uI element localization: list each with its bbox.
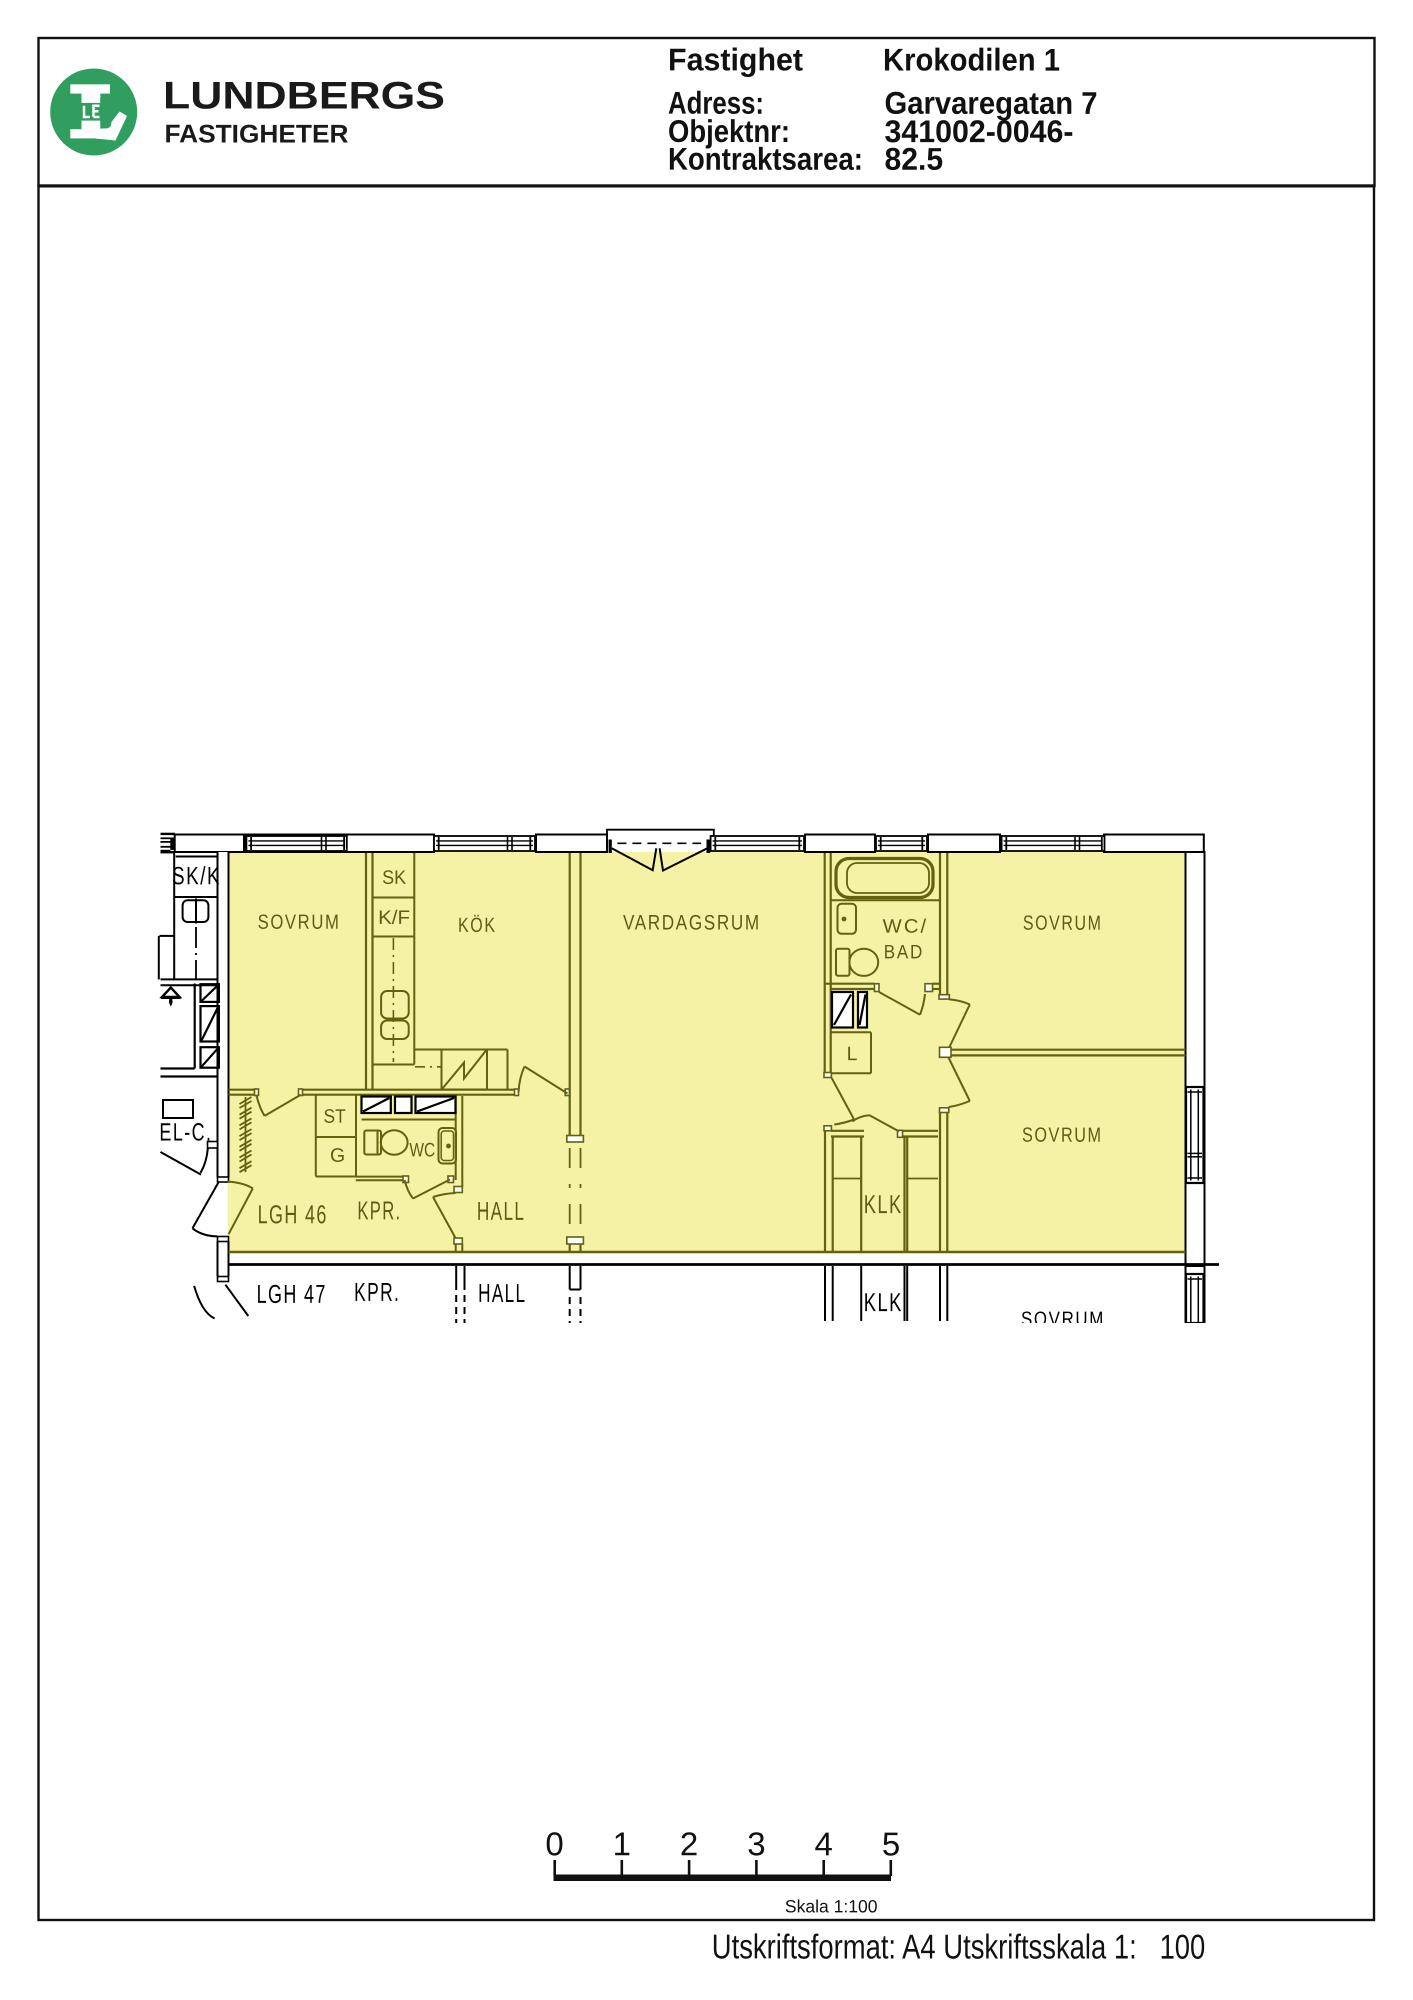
svg-text:5: 5 [882,1825,900,1862]
svg-text:KPR.: KPR. [357,1195,401,1225]
svg-text:LGH 46: LGH 46 [258,1199,328,1229]
svg-text:VARDAGSRUM: VARDAGSRUM [623,911,761,934]
svg-text:82.5: 82.5 [884,141,943,177]
svg-text:4: 4 [815,1825,833,1862]
svg-text:SK: SK [382,867,406,889]
svg-text:SOVRUM: SOVRUM [1021,1308,1105,1331]
svg-text:Fastighet: Fastighet [668,41,804,77]
svg-text:LUNDBERGS: LUNDBERGS [163,74,445,117]
svg-text:KPR.: KPR. [354,1277,400,1307]
svg-text:SK/K: SK/K [172,862,221,890]
svg-text:HALL: HALL [477,1196,525,1226]
svg-text:LGH 47: LGH 47 [257,1279,327,1309]
svg-text:3: 3 [747,1825,765,1862]
svg-text:HALL: HALL [478,1278,526,1308]
svg-text:SOVRUM: SOVRUM [258,911,341,934]
svg-text:G: G [330,1145,347,1167]
svg-text:ST: ST [324,1106,346,1128]
svg-text:WC/: WC/ [883,916,929,938]
svg-text:Kontraktsarea:: Kontraktsarea: [668,141,863,177]
svg-text:KLK: KLK [864,1189,903,1219]
svg-text:SOVRUM: SOVRUM [1023,912,1103,935]
svg-text:SOVRUM: SOVRUM [1022,1124,1103,1147]
svg-text:1: 1 [613,1825,631,1862]
svg-text:KÖK: KÖK [458,914,497,937]
svg-text:L: L [847,1043,860,1065]
svg-text:2: 2 [680,1825,698,1862]
svg-text:BAD: BAD [884,941,924,963]
svg-text:FASTIGHETER: FASTIGHETER [164,120,348,148]
svg-text:Utskriftsformat: A4 Utskriftss: Utskriftsformat: A4 Utskriftsskala 1: 10… [712,1928,1206,1966]
svg-text:WC: WC [409,1139,435,1161]
svg-text:0: 0 [545,1825,563,1862]
svg-text:K/F: K/F [378,907,410,929]
svg-text:Skala 1:100: Skala 1:100 [785,1896,878,1916]
svg-text:KLK: KLK [864,1287,903,1317]
svg-text:EL-C.: EL-C. [159,1118,212,1146]
svg-text:Krokodilen 1: Krokodilen 1 [883,41,1060,77]
